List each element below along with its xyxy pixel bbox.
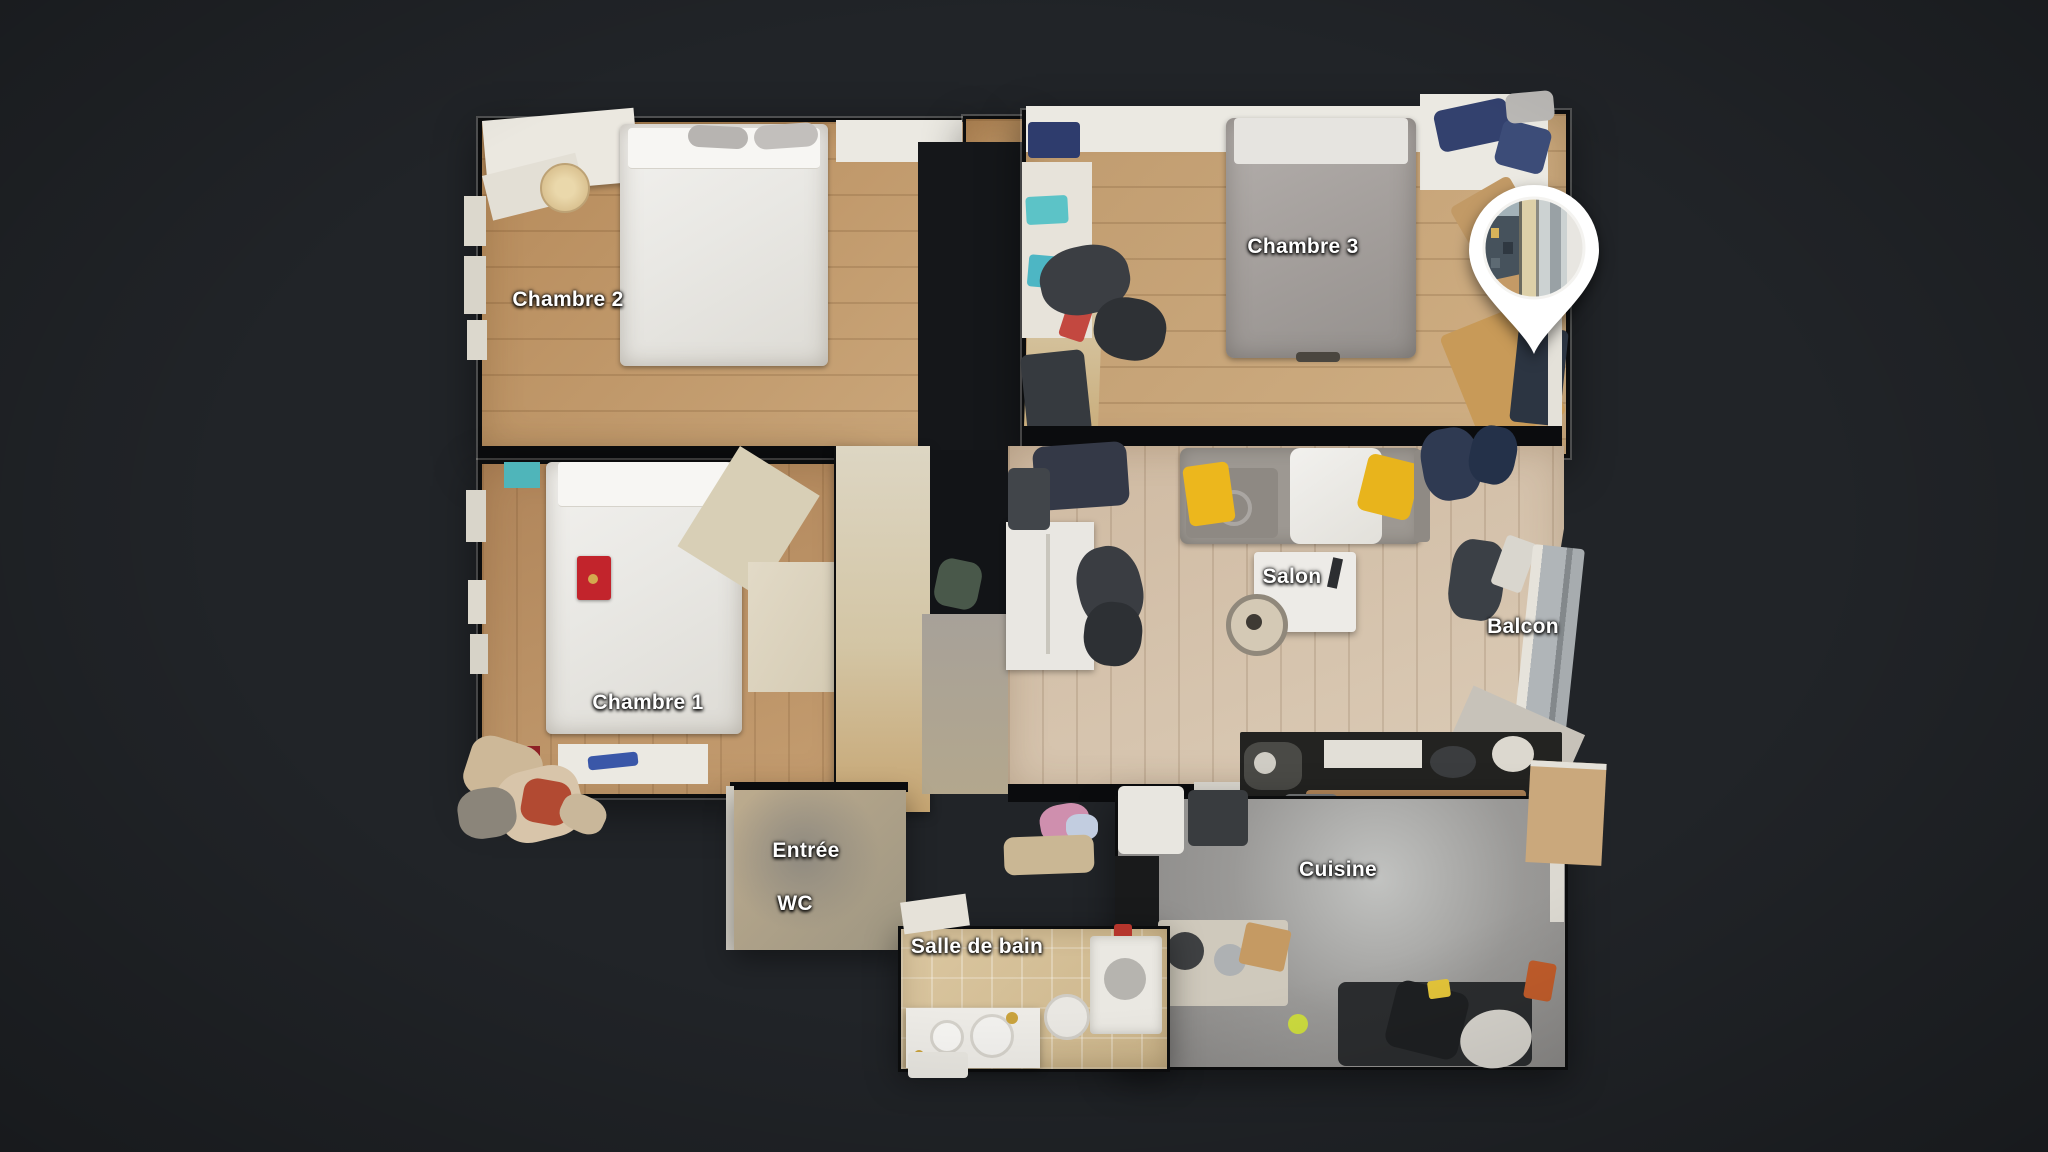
room-label-wc: WC (777, 892, 813, 916)
plate-rack (1044, 994, 1090, 1040)
bath-items (908, 1052, 968, 1078)
cooking-pot (1430, 746, 1476, 778)
radiator (468, 580, 486, 624)
kettle (1492, 736, 1534, 772)
wall-segment (726, 786, 734, 950)
green-object (1288, 1014, 1308, 1034)
counter-right (1525, 760, 1606, 866)
radiator (467, 320, 487, 360)
floorplan-viewer: Chambre 2 Chambre 3 Chambre 1 Salon Balc… (0, 0, 2048, 1152)
robot-vacuum-center (1246, 614, 1262, 630)
counter-shelf (1324, 740, 1422, 768)
panorama-pin[interactable] (1449, 170, 1619, 360)
room-label-chambre-3: Chambre 3 (1247, 235, 1358, 259)
room-entree-floor[interactable] (734, 790, 906, 950)
room-label-chambre-1: Chambre 1 (592, 691, 703, 715)
radiator (464, 256, 486, 314)
bed-pillows (558, 462, 730, 507)
book-clasp (588, 574, 598, 584)
nightstand (504, 462, 540, 488)
open-door-panel (834, 446, 930, 812)
rolled-duvet (687, 124, 748, 149)
desk-drawer-line (1046, 534, 1050, 654)
room-label-salle-de-bain: Salle de bain (911, 935, 1043, 959)
radiator (464, 196, 486, 246)
room-label-chambre-2: Chambre 2 (512, 288, 623, 312)
cushion (1505, 90, 1555, 124)
bed-foot (1296, 352, 1340, 362)
rolled-duvet (753, 122, 819, 150)
desk-items (1025, 195, 1068, 225)
bed-pillows (1234, 118, 1408, 164)
wardrobe (748, 562, 844, 692)
bench (1003, 834, 1094, 875)
cooking-pot (1166, 932, 1204, 970)
plate (1254, 752, 1276, 774)
ceiling-lamp (540, 163, 590, 213)
radiator (466, 490, 486, 542)
yellow-cushion (1182, 461, 1236, 527)
storage-bin (1028, 122, 1080, 158)
sink-bowl (930, 1020, 964, 1054)
faucet-gold (1006, 1012, 1018, 1024)
room-label-entree: Entrée (772, 839, 839, 863)
yellow-object (1427, 979, 1451, 1000)
wall-gap (918, 142, 1022, 454)
room-label-cuisine: Cuisine (1299, 858, 1377, 882)
fridge-top (1118, 786, 1184, 854)
washing-machine-drum (1104, 958, 1146, 1000)
room-label-balcon: Balcon (1487, 615, 1559, 639)
appliance-dark (1188, 790, 1248, 846)
room-label-salon: Salon (1263, 565, 1322, 589)
dark-object (1008, 468, 1050, 530)
radiator (470, 634, 488, 674)
